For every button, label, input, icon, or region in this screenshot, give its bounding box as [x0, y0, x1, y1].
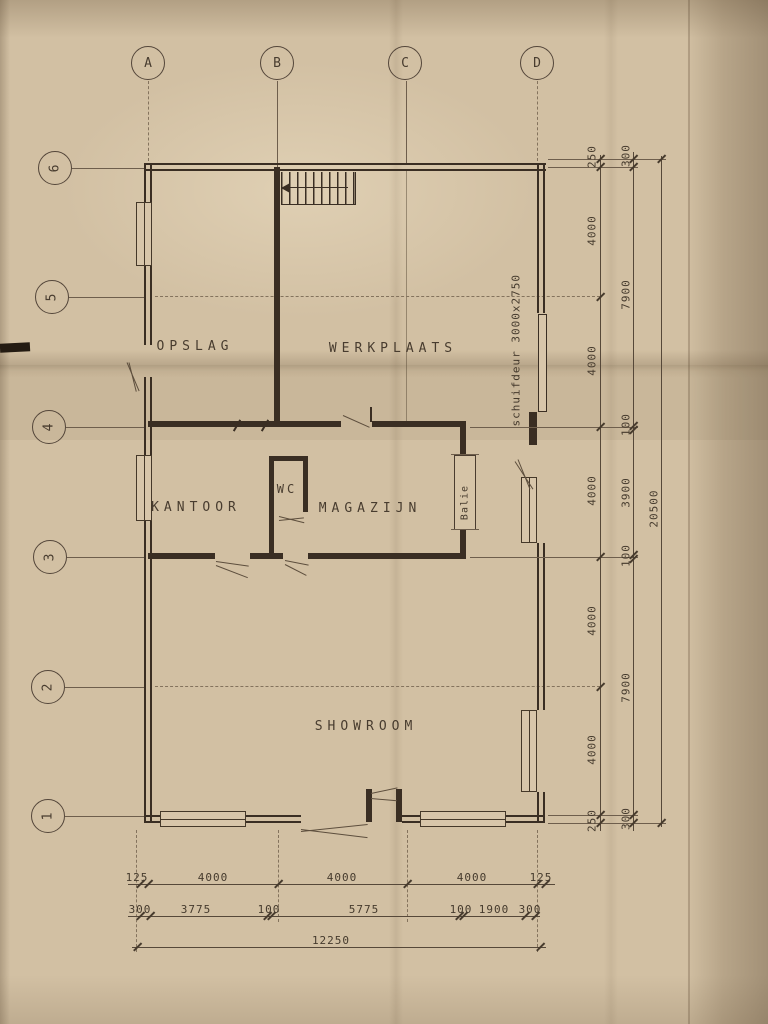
room-label-kantoor: KANTOOR	[131, 500, 261, 515]
grid-line-a-leader	[148, 81, 149, 161]
wall-row3-3	[308, 553, 466, 559]
paper-edge-mark	[0, 342, 30, 353]
grid-line-d-leader	[537, 81, 538, 161]
grid-row-circle-6: 6	[38, 151, 72, 185]
paper-shade-right	[686, 0, 768, 1024]
dimension-line-right-mid	[633, 152, 634, 831]
stairs-direction-line	[288, 187, 348, 188]
door-swing-kantoor-2	[216, 561, 249, 567]
wall-row4-left	[148, 421, 341, 427]
dim-label: 3900	[620, 471, 633, 515]
grid-row-4-leader	[66, 427, 144, 428]
dimension-line-right-total	[661, 156, 662, 827]
dim-label: 3775	[171, 903, 221, 916]
dim-label: 100	[620, 534, 633, 578]
dim-label-total-width: 12250	[306, 934, 356, 947]
paper-shade-bottom	[0, 975, 768, 1024]
grid-row-circle-2: 2	[31, 670, 65, 704]
grid-row-label-6: 6	[47, 164, 62, 172]
room-label-opslag: OPSLAG	[135, 339, 255, 354]
extension-line	[470, 427, 638, 428]
grid-column-circle-b: B	[260, 46, 294, 80]
door-swing-entry-2	[371, 798, 397, 801]
grid-line-c-leader	[406, 81, 407, 163]
dim-label: 7900	[620, 273, 633, 317]
grid-row-5-leader	[69, 297, 144, 298]
paper-crease-right-line	[688, 0, 690, 1024]
wall-row4-right	[372, 421, 466, 427]
dim-label: 300	[505, 903, 555, 916]
grid-row-label-3: 3	[42, 553, 57, 561]
extension-line	[470, 557, 638, 558]
wall-left-1	[144, 163, 152, 202]
window-bottom-left	[160, 811, 246, 827]
wall-left-4	[144, 521, 152, 823]
grid-column-label-a: A	[144, 56, 152, 71]
dimension-line-bottom-a	[128, 884, 555, 885]
grid-row-circle-3: 3	[33, 540, 67, 574]
wall-magazijn-right-1	[460, 421, 466, 458]
grid-row-label-4: 4	[41, 423, 56, 431]
grid-line-d-extension-bottom	[537, 830, 538, 952]
dim-label: 4000	[317, 871, 367, 884]
dim-label: 5775	[339, 903, 389, 916]
dim-label: 250	[586, 799, 599, 843]
grid-line-c-extension-bottom	[407, 830, 408, 922]
entry-vestibule-stub-right	[396, 789, 402, 822]
dim-label-total-height: 20500	[648, 487, 661, 531]
dim-label: 7900	[620, 666, 633, 710]
paper-fold-band	[0, 365, 768, 440]
wall-bottom-2	[246, 815, 301, 823]
dim-label: 4000	[586, 339, 599, 383]
wall-left-3	[144, 377, 152, 455]
grid-row-label-5: 5	[44, 293, 59, 301]
grid-line-b-leader	[277, 81, 278, 167]
wall-left-2	[144, 266, 152, 345]
sliding-door	[538, 314, 547, 412]
dim-label: 125	[112, 871, 162, 884]
dimension-line-bottom-total	[132, 947, 546, 948]
dim-label: 125	[516, 871, 566, 884]
wall-magazijn-right-2	[460, 528, 466, 559]
grid-row-circle-4: 4	[32, 410, 66, 444]
wall-right-2	[537, 543, 545, 710]
grid-row-circle-1: 1	[31, 799, 65, 833]
door-swing-kantoor	[216, 565, 248, 578]
dim-label: 4000	[586, 599, 599, 643]
grid-column-circle-d: D	[520, 46, 554, 80]
dimension-line-right-inner	[600, 155, 601, 831]
dim-label: 100	[244, 903, 294, 916]
dim-label: 100	[620, 403, 633, 447]
window-bottom-right	[420, 811, 506, 827]
grid-column-label-d: D	[533, 56, 541, 71]
grid-row-circle-5: 5	[35, 280, 69, 314]
dim-label: 4000	[586, 728, 599, 772]
entry-door-mark-2	[301, 824, 368, 832]
stairs	[281, 172, 356, 205]
door-swing-left-wall-2	[129, 362, 137, 391]
door-swing-entry	[371, 787, 398, 794]
wall-right-1	[537, 163, 545, 313]
dim-label: 4000	[586, 209, 599, 253]
stairs-arrow-icon	[281, 183, 290, 193]
paper-fold-vertical-2	[604, 0, 618, 1024]
paper-shade-left-edge	[0, 0, 10, 1024]
grid-line-row2-dashed	[155, 686, 600, 687]
balie-end-tick-bottom	[451, 529, 479, 530]
wall-top	[144, 163, 546, 171]
grid-line-a-extension-bottom	[136, 830, 137, 952]
extension-line	[548, 823, 666, 824]
wall-wc-left	[269, 456, 274, 553]
dim-label: 4000	[586, 469, 599, 513]
grid-row-label-1: 1	[40, 812, 55, 820]
dim-label: 250	[586, 135, 599, 179]
dim-label: 300	[620, 134, 633, 178]
door-swing-werkplaats	[343, 415, 370, 428]
dim-label: 300	[115, 903, 165, 916]
room-label-balie: Balie	[460, 481, 471, 525]
grid-column-circle-a: A	[131, 46, 165, 80]
window-left-opslag	[136, 202, 152, 266]
paper-shade-top	[0, 0, 768, 38]
grid-row-2-leader	[65, 687, 144, 688]
blueprint-page: A B C D 6 5 4 3 2 1	[0, 0, 768, 1024]
grid-row-label-2: 2	[40, 683, 55, 691]
grid-line-row5-dashed	[155, 296, 600, 297]
dim-label: 300	[620, 797, 633, 841]
room-label-showroom: SHOWROOM	[286, 719, 446, 734]
door-swing-wc-entry	[285, 564, 307, 576]
door-jamb-werkplaats	[370, 407, 372, 422]
wall-right-stub	[529, 412, 537, 445]
grid-row-1-leader	[65, 816, 144, 817]
grid-column-label-c: C	[401, 56, 409, 71]
wall-row3-2	[250, 553, 283, 559]
wall-right-3	[537, 792, 545, 823]
window-right-low	[521, 710, 537, 792]
dimension-line-bottom-b	[128, 916, 540, 917]
room-label-magazijn: MAGAZIJN	[295, 501, 445, 516]
wall-bottom-3	[402, 815, 420, 823]
grid-row-3-leader	[67, 557, 144, 558]
wall-interior-b	[274, 167, 280, 421]
dim-label: 4000	[188, 871, 238, 884]
grid-column-label-b: B	[273, 56, 281, 71]
grid-row-6-leader	[72, 168, 144, 169]
wall-row3-1	[148, 553, 215, 559]
sliding-door-label: schuifdeur 3000x2750	[510, 277, 523, 427]
balie-end-tick-top	[451, 454, 479, 455]
wall-bottom-1	[144, 815, 160, 823]
grid-column-circle-c: C	[388, 46, 422, 80]
room-label-wc: WC	[267, 482, 307, 496]
extension-line	[548, 159, 666, 160]
room-label-werkplaats: WERKPLAATS	[308, 341, 478, 356]
dim-label: 4000	[447, 871, 497, 884]
